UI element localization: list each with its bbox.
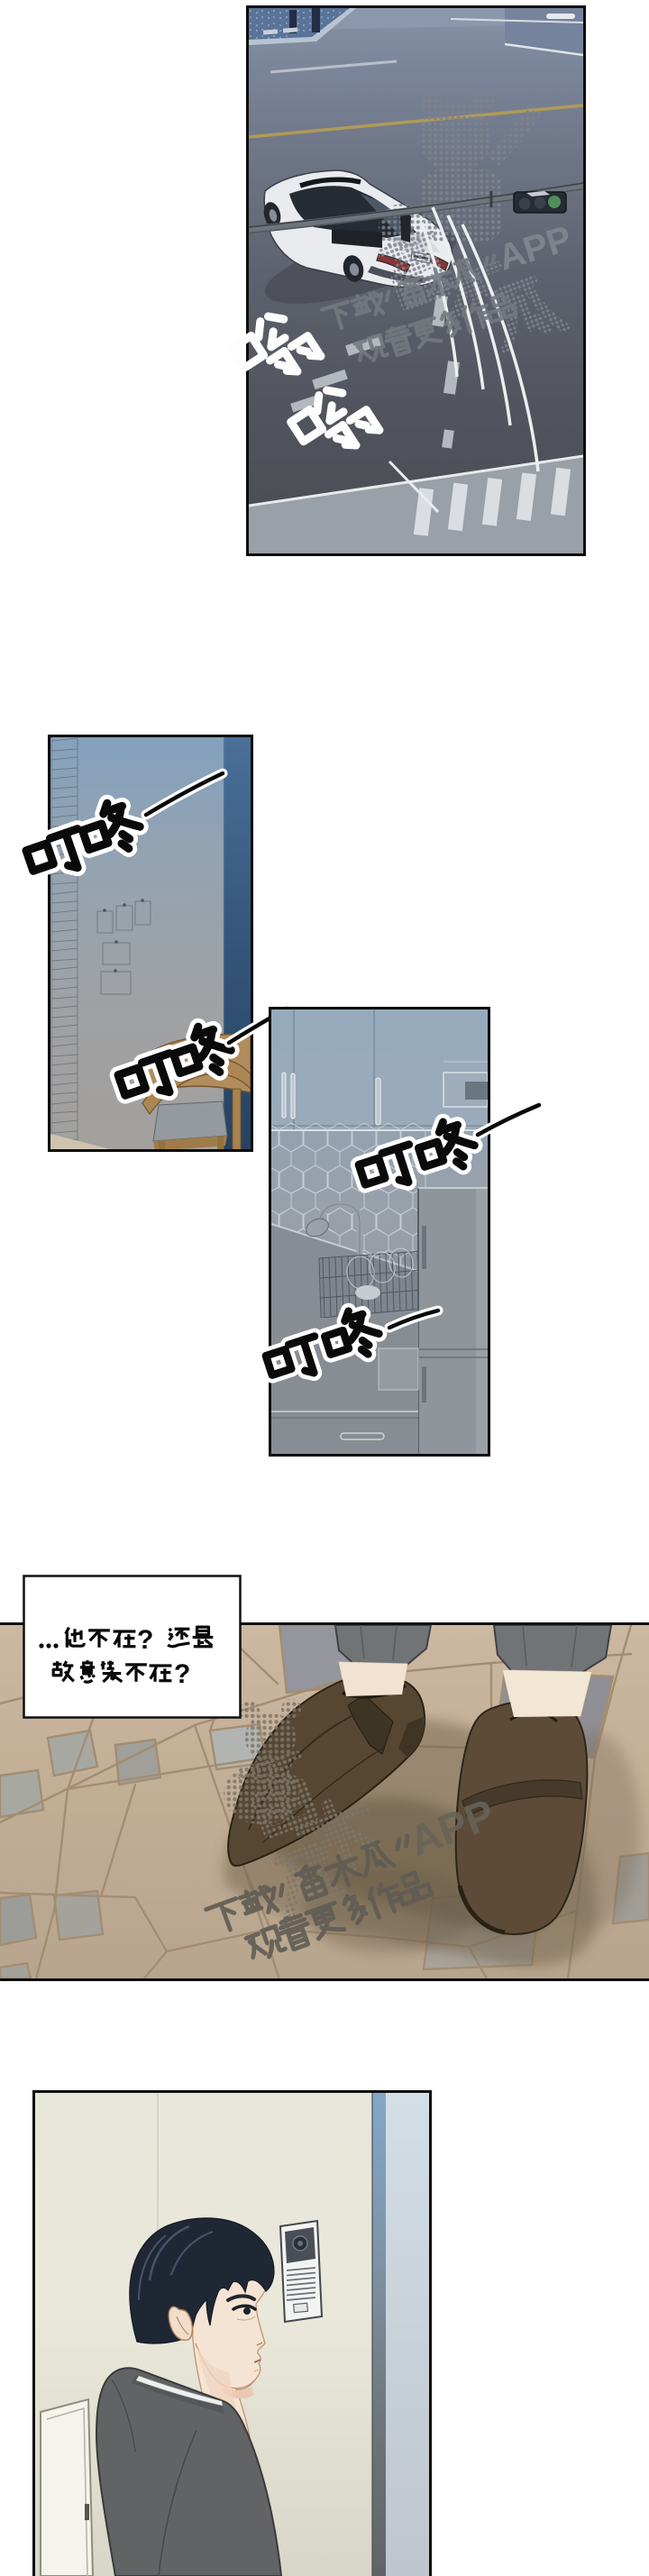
svg-text:?: ? [137,1625,153,1655]
svg-text:?: ? [174,1659,190,1689]
